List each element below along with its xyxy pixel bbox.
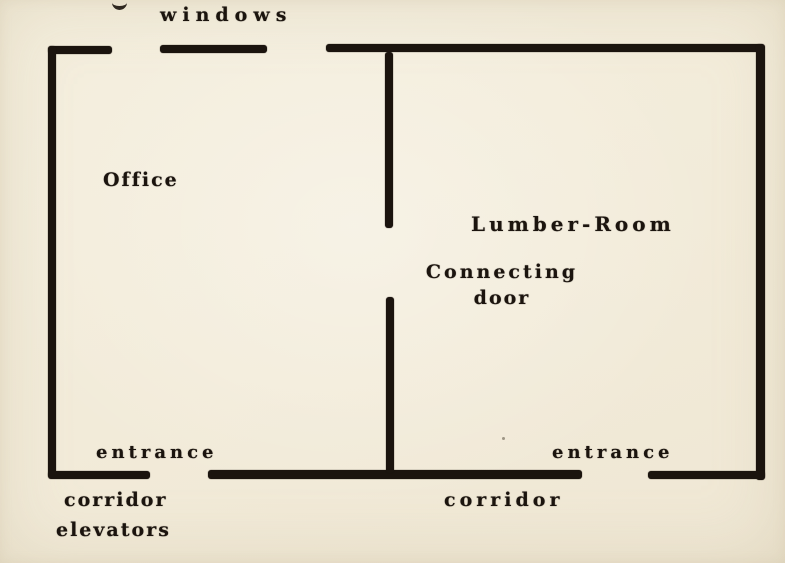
elevators-label: elevators: [56, 519, 171, 541]
paper-speck: [502, 437, 505, 440]
windows-label: windows: [160, 4, 292, 26]
wall-partition-upper: [385, 52, 393, 228]
wall-bottom-segment-2: [208, 470, 582, 479]
wall-top-segment-2: [160, 45, 267, 53]
cropped-glyph-mark: [112, 0, 127, 10]
wall-partition-lower: [386, 297, 394, 473]
wall-bottom-segment-3: [648, 471, 765, 479]
floor-plan-figure: windows Office Lumber-Room Connecting do…: [0, 0, 785, 563]
wall-top-segment-3: [326, 44, 764, 52]
corridor-left-label: corridor: [64, 489, 167, 511]
connecting-door-label-line2: door: [413, 285, 591, 311]
connecting-door-label: Connecting door: [413, 259, 591, 311]
corridor-bottom-label: corridor: [444, 489, 563, 511]
wall-right: [756, 44, 765, 480]
wall-top-segment-1: [48, 46, 112, 54]
connecting-door-label-line1: Connecting: [413, 259, 591, 285]
entrance-right-label: entrance: [552, 442, 674, 463]
wall-bottom-segment-1: [48, 471, 150, 479]
entrance-left-label: entrance: [96, 442, 218, 463]
lumber-room-label: Lumber-Room: [471, 212, 675, 236]
office-room-label: Office: [103, 169, 179, 191]
wall-left: [48, 46, 56, 478]
